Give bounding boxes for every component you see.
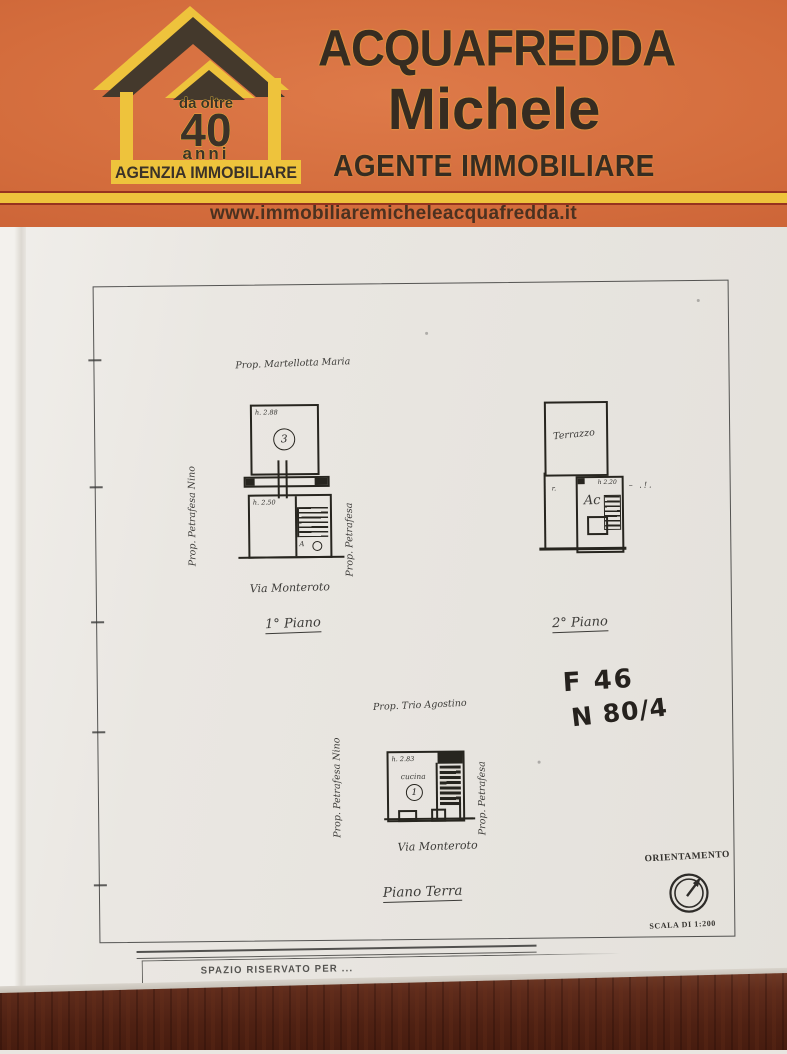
- ground-room-number: 1: [411, 787, 417, 797]
- ground-floor-owner-right-label: Prop. Petrafesa: [477, 761, 489, 835]
- room-height-note: h 2.20: [598, 479, 617, 486]
- room-number-circle: 3: [273, 428, 295, 450]
- first-floor-owner-right-label: Prop. Petrafesa: [344, 503, 356, 577]
- first-floor-caption: 1° Piano: [265, 615, 321, 634]
- room-label: Ac: [584, 493, 601, 508]
- first-floor-lower-room: h. 2.50 A: [248, 494, 333, 559]
- room-number-circle: 1: [406, 784, 423, 801]
- wall-stub: [578, 478, 585, 484]
- second-floor-caption: 2° Piano: [552, 614, 608, 633]
- border-tick-mark: [90, 486, 103, 488]
- footer-strip-label: SPAZIO RISERVATO PER ...: [201, 963, 354, 977]
- ground-floor-owner-left-label: Prop. Petrafesa Nino: [331, 737, 343, 837]
- terrace-mark: r.: [552, 484, 557, 492]
- staircase-hatching: [297, 507, 328, 537]
- border-tick-mark: [88, 359, 101, 361]
- upper-room-height-note: h. 2.88: [255, 408, 278, 416]
- upper-room-number: 3: [281, 433, 288, 445]
- photocopy-speck: [697, 299, 700, 302]
- room-height-note: h. 2.83: [392, 755, 415, 763]
- compass-icon: [667, 871, 711, 915]
- stray-marks: – .!.: [629, 480, 654, 489]
- border-tick-mark: [92, 731, 105, 733]
- second-floor-room: h 2.20 Ac: [576, 476, 625, 553]
- entry-step: [431, 809, 446, 822]
- floorplan-document: Prop. Martellotta Maria h. 2.88 3 h. 2.5…: [0, 0, 787, 1054]
- ground-floor-caption: Piano Terra: [383, 883, 463, 903]
- first-floor-street-label: Via Monteroto: [250, 580, 330, 595]
- photo-of-agency-floorplan-flyer: { "banner": { "logo": { "tagline_top": "…: [0, 0, 787, 1050]
- cadastral-sheet-note: F 46: [562, 664, 635, 698]
- terrace-label: Terrazzo: [553, 427, 596, 442]
- photocopy-speck: [425, 332, 428, 335]
- lower-room-height-note: h. 2.50: [253, 498, 276, 506]
- border-tick-mark: [94, 884, 107, 886]
- staircase-dark-hatching: [440, 765, 461, 805]
- balcony-end-block: [246, 479, 255, 486]
- wc-label: A: [299, 540, 304, 548]
- ground-floor-street-label: Via Monteroto: [397, 839, 477, 854]
- kitchen-label: cucina: [401, 772, 426, 781]
- balcony-end-block: [315, 478, 328, 485]
- first-floor-owner-left-label: Prop. Petrafesa Nino: [186, 466, 198, 566]
- second-floor-terrace: Terrazzo: [544, 401, 609, 477]
- border-tick-mark: [91, 621, 104, 623]
- fixture-box: [587, 516, 608, 535]
- dark-block: [437, 751, 462, 763]
- wall-stub: [459, 817, 473, 820]
- wc-fixture-circle: [312, 541, 322, 551]
- entry-step: [398, 810, 417, 822]
- photocopy-speck: [538, 761, 541, 764]
